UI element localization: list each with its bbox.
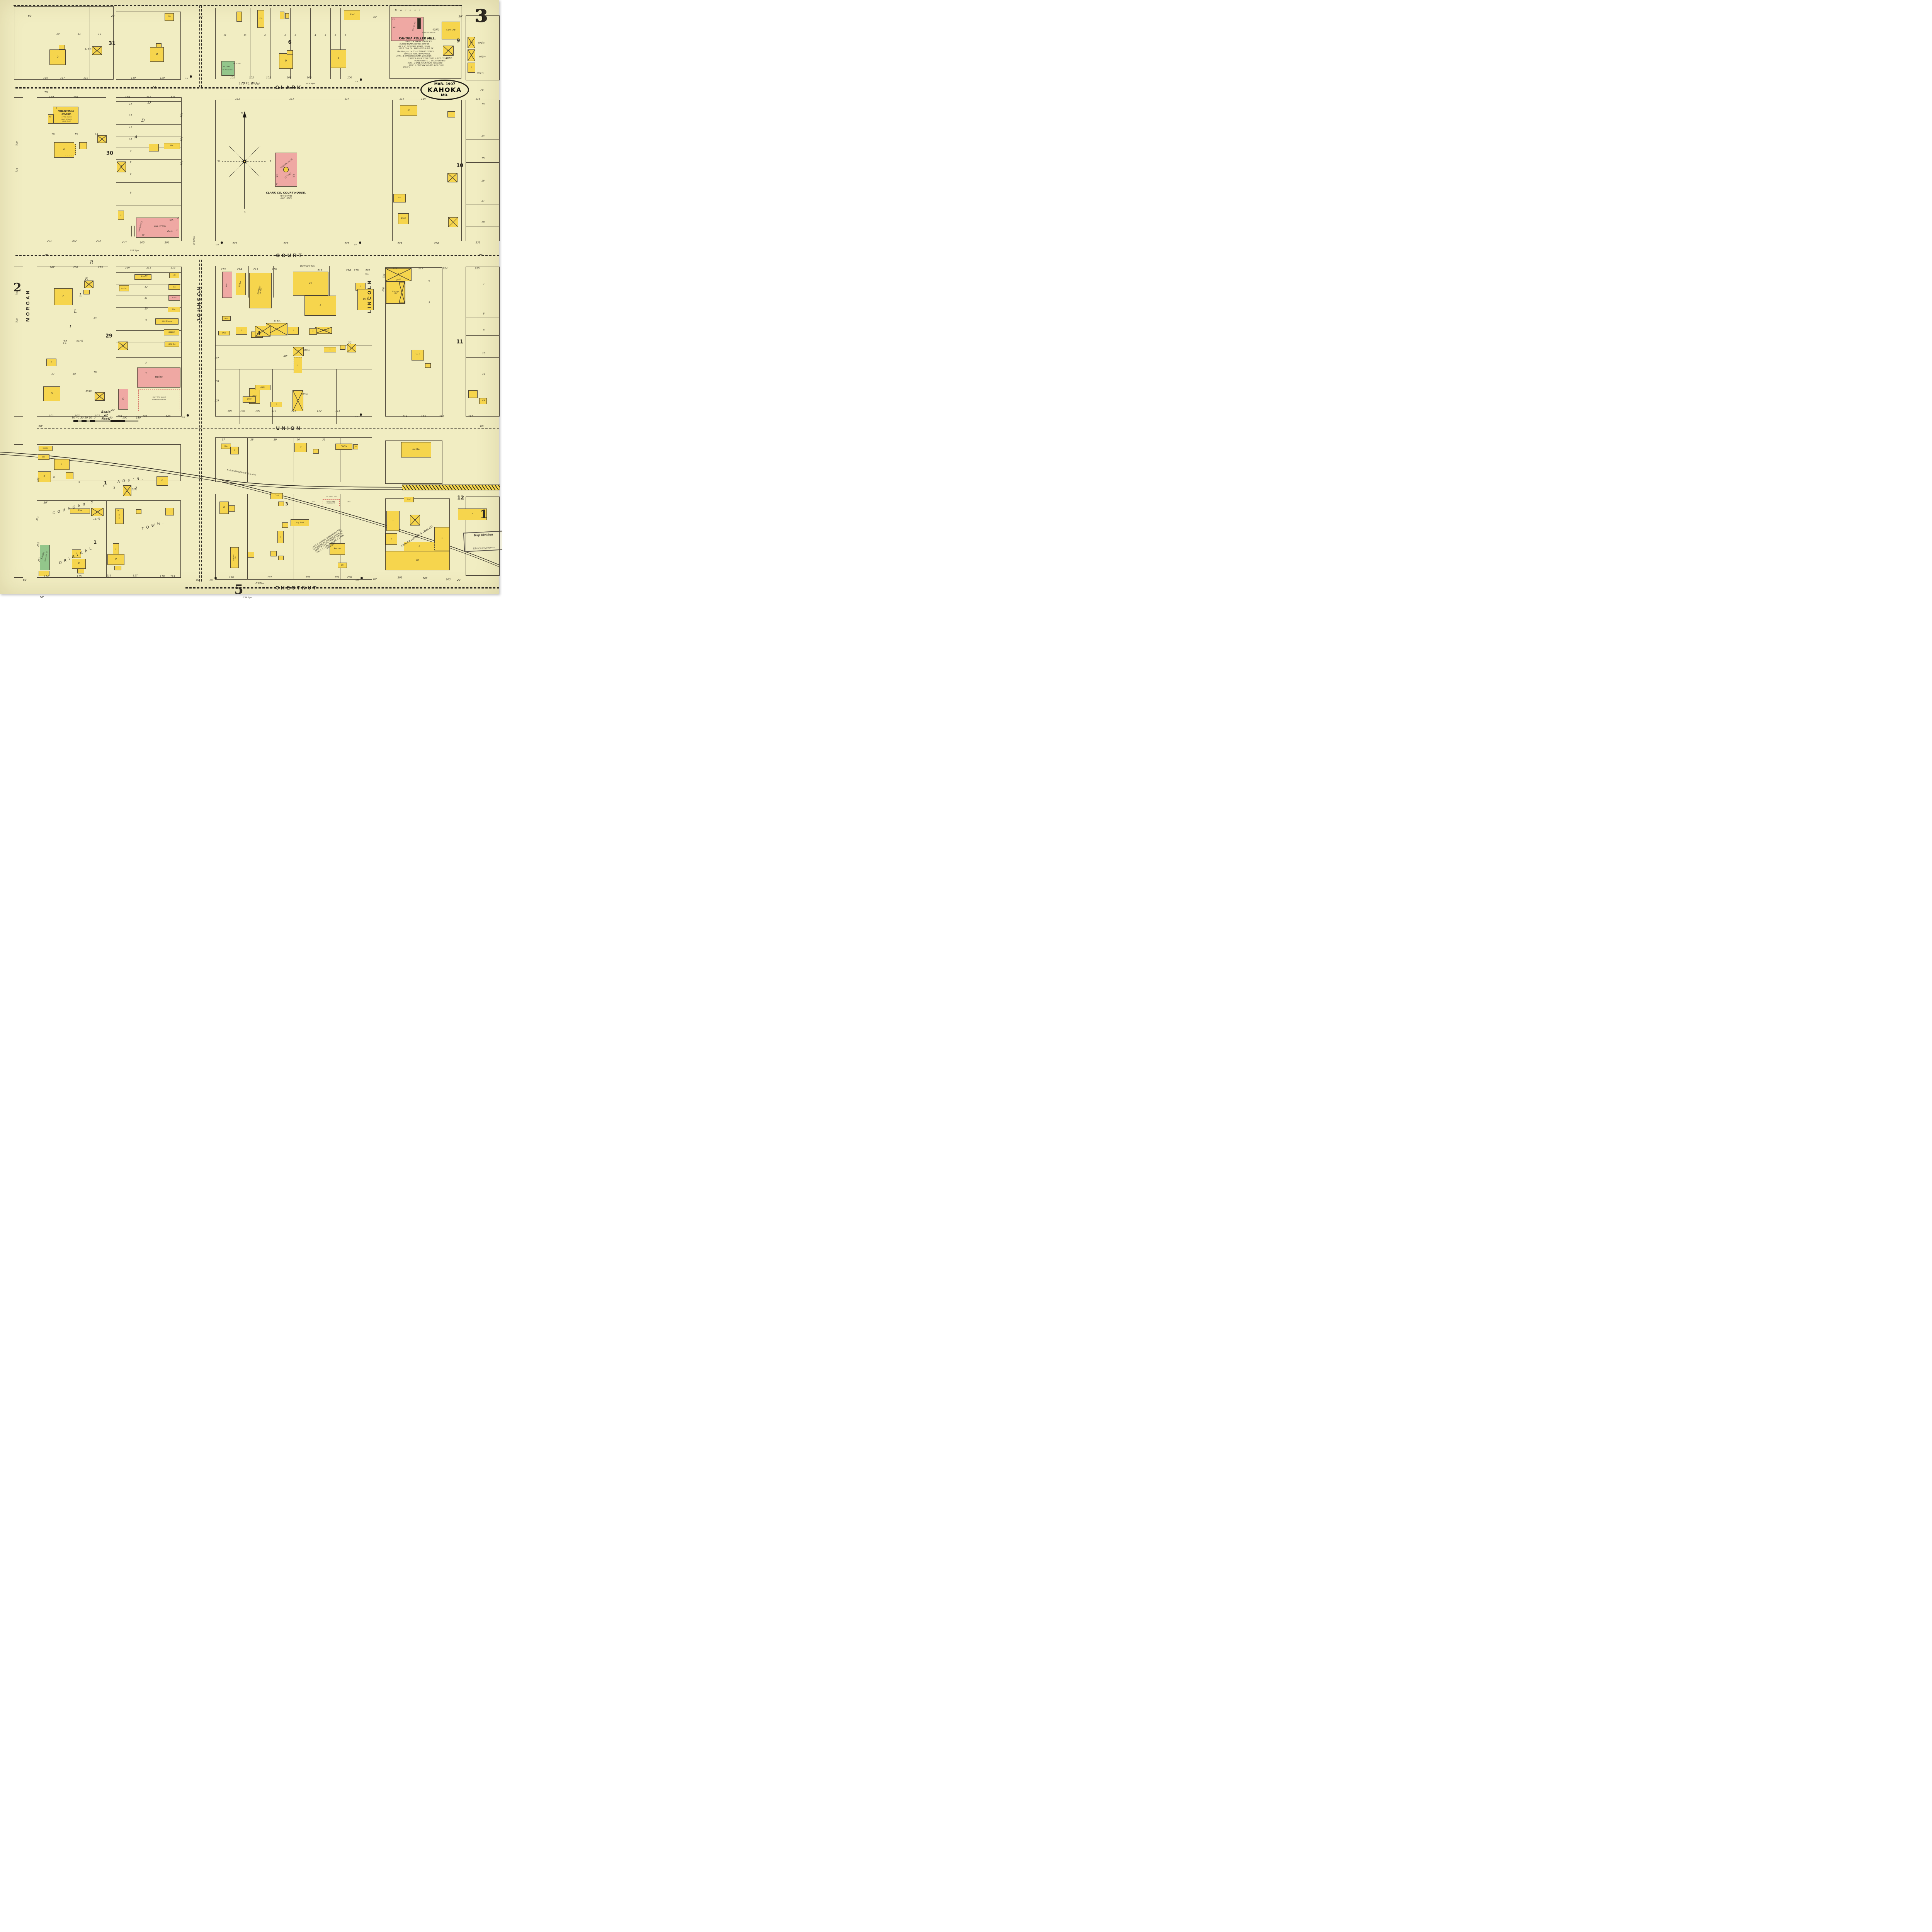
building-label: 1	[320, 304, 321, 306]
building-label: D	[408, 109, 410, 112]
building: 1	[324, 347, 336, 352]
building: D	[219, 502, 229, 514]
building: Vac.	[38, 454, 49, 460]
map-label: 6	[429, 279, 430, 282]
map-label: H	[63, 340, 67, 345]
map-label: 80'	[199, 16, 203, 19]
map-label: 10	[456, 163, 463, 169]
building-label: 1½	[398, 197, 401, 199]
building-label: Vac.	[170, 145, 174, 147]
building	[79, 142, 87, 149]
building: (Old) Storage	[155, 318, 179, 325]
building-label: Off.	[416, 560, 419, 561]
map-label: 1 PACKER, 5 DBLE STAND ROLLS.	[404, 53, 431, 55]
building: West	[243, 396, 256, 403]
building: Gro.	[222, 272, 232, 298]
map-label: 199	[335, 576, 339, 578]
building: Barber	[236, 273, 246, 295]
map-label: 3	[325, 34, 326, 37]
building	[83, 290, 90, 294]
map-label: 135	[214, 400, 219, 403]
building-label: 1	[330, 349, 331, 350]
map-label: 80'	[196, 579, 200, 582]
lot-line	[272, 369, 273, 424]
building-label: 2	[338, 58, 339, 60]
map-label: G"W.Pipe	[130, 250, 139, 252]
building-label: 2	[419, 546, 420, 548]
map-label: 220	[366, 269, 370, 272]
building-label: 1	[276, 404, 277, 405]
map-label: 113	[335, 410, 340, 412]
map-label: E	[85, 277, 88, 281]
lot-line	[69, 6, 69, 80]
map-label: 227	[284, 242, 288, 245]
street-name-court: COURT	[276, 253, 303, 259]
lot-line	[116, 124, 181, 125]
hydrant-label: D.H.	[355, 580, 359, 582]
map-label: 217½	[274, 321, 280, 323]
building-label: Hay Shed	[296, 522, 304, 524]
map-label: 14	[94, 316, 97, 319]
building: D	[150, 47, 164, 62]
street-name-clark: CLARK	[276, 85, 303, 90]
scale-bar-segment	[95, 420, 111, 422]
building-label: D	[44, 476, 45, 478]
map-label: ARCH 26' ABV. RF.	[422, 32, 435, 33]
building-label: 1	[127, 490, 128, 492]
map-label: 3	[113, 487, 115, 490]
building-label: 2	[51, 362, 52, 364]
map-label: D	[148, 100, 151, 105]
building: D	[49, 49, 66, 65]
map-label: STANDING IN RUIN.	[152, 399, 167, 400]
building: 2	[84, 281, 94, 288]
map-label: 116	[439, 415, 444, 418]
map-label: 11	[145, 297, 148, 300]
building	[448, 217, 458, 227]
scale-bar-tick: 100	[122, 416, 127, 419]
map-label: 9	[145, 320, 147, 322]
hydrant-dot	[360, 78, 362, 81]
street-dash-line	[14, 5, 462, 6]
lot-line	[247, 437, 248, 482]
map-label: 60'	[28, 15, 32, 18]
map-label: 198	[306, 576, 310, 578]
map-label: 2d Fl:— 1 CRANSON SCOURER & POLISHER.	[396, 56, 432, 58]
building	[59, 45, 65, 49]
building-label: Ruins	[155, 376, 162, 379]
building: (OLD)	[255, 385, 270, 390]
building: D	[43, 386, 60, 401]
map-label: 209	[98, 266, 103, 269]
map-label: 206½	[303, 350, 310, 352]
map-label: 5	[429, 301, 430, 304]
sanborn-map-page: MAR. 1907 KAHOKA MO. 3 Map Division Libr…	[0, 0, 502, 599]
building: (Old) D'g	[165, 342, 179, 347]
building: 1	[54, 459, 70, 470]
map-label: 401½	[446, 58, 452, 60]
map-label: 14	[95, 133, 98, 136]
map-label: ( 70 Ft. Wide)	[239, 82, 260, 86]
building: 2	[118, 342, 128, 350]
building-label: 1	[116, 549, 117, 550]
map-label: PART OF 2 WALLS	[153, 396, 166, 398]
building-label: 2	[121, 166, 122, 168]
map-label: 105	[307, 76, 311, 79]
building	[221, 61, 235, 76]
map-label: A	[134, 135, 138, 139]
building: 1½	[165, 13, 174, 21]
map-label: 18	[481, 221, 485, 223]
building	[97, 135, 107, 143]
hydrant-dot	[214, 577, 217, 579]
building-label: (Old) Storage	[162, 321, 172, 322]
lot-line	[466, 378, 500, 378]
building-label: Ice Ho.	[119, 514, 120, 519]
map-label: 197	[267, 576, 272, 578]
map-label: 211	[146, 266, 151, 269]
map-label: 226	[233, 242, 237, 245]
building-label: D	[51, 393, 53, 395]
map-label: 30'	[142, 234, 145, 236]
building: Ice Ho.	[119, 285, 129, 291]
street-name-johnson: JOHNSON	[196, 285, 202, 321]
building-label: Poultry	[341, 446, 347, 448]
map-label: 20'	[111, 409, 115, 412]
map-label: 6	[288, 40, 291, 46]
lot-line	[294, 494, 294, 580]
building	[156, 43, 162, 47]
map-label: 12	[98, 32, 101, 35]
building: 2	[468, 49, 475, 61]
map-label: 18	[73, 372, 76, 375]
scale-bar-segment	[86, 420, 90, 422]
railroad-crossing-hatch	[402, 485, 500, 490]
building-label: Vac.	[224, 446, 228, 447]
map-label: 136	[214, 381, 219, 383]
building-label: West	[247, 399, 251, 401]
building-label: Ruins	[172, 297, 176, 299]
map-label: 5	[234, 582, 243, 597]
building-label: Sal.	[173, 275, 176, 277]
building-label: Gro.	[226, 283, 228, 287]
building-label: Carriage Ho	[392, 291, 399, 294]
scale-bar-tick: 50	[72, 416, 75, 419]
map-label: 5	[145, 362, 147, 365]
map-stage: MAR. 1907 KAHOKA MO. 3 Map Division Libr…	[0, 0, 499, 594]
building: Corn Crib	[442, 22, 460, 39]
building-label: Seed Ho	[334, 548, 341, 550]
building-label: 1	[121, 214, 122, 216]
map-label: 8	[264, 34, 266, 37]
hydrant-label: D.H.	[354, 244, 357, 246]
map-label: 20'	[111, 15, 116, 18]
scale-bar-tick: 40	[76, 416, 79, 419]
map-label: LIGHT: LAMPS.	[280, 197, 292, 199]
building: 3	[277, 531, 284, 543]
map-label: 102½	[130, 489, 137, 492]
map-label: CLARK CO. COURT HOUSE.	[266, 192, 306, 195]
map-label: 210	[125, 266, 130, 269]
street-dash-line	[15, 88, 466, 89]
map-label: 203	[446, 578, 451, 581]
lot-line	[248, 266, 249, 298]
map-label: Tremont Ho.	[300, 265, 315, 267]
building-label: 2	[398, 274, 399, 276]
building-label: D	[78, 563, 80, 565]
building	[285, 13, 289, 19]
building-label: 2	[298, 351, 299, 353]
building-label: 1	[293, 330, 294, 332]
map-label: 7	[483, 282, 485, 285]
map-label: 10	[145, 308, 148, 311]
building	[77, 569, 84, 573]
building-label: (OLD) D	[168, 332, 175, 333]
building: Ruins	[168, 295, 180, 301]
building-label: Vac.	[172, 309, 175, 310]
map-label: 29	[274, 438, 277, 441]
map-label: 202	[423, 577, 427, 580]
map-label: 36'	[393, 27, 396, 29]
map-label: 20'	[457, 579, 461, 582]
building-label: Corn Crib	[446, 29, 455, 31]
map-label: E	[270, 161, 271, 163]
map-label: 108	[73, 96, 78, 99]
map-label: GASO. TANK UNDERGR'D	[327, 501, 335, 504]
building: Off.	[338, 563, 347, 568]
building	[278, 502, 284, 506]
map-label: 50'	[49, 116, 52, 118]
map-label: 208	[73, 266, 78, 269]
building: Coal	[404, 497, 414, 502]
map-label: 205	[140, 241, 145, 244]
lot-line	[466, 185, 500, 185]
map-label: 20 24	[276, 174, 278, 177]
lot-line	[234, 266, 234, 298]
map-label: 110	[272, 410, 276, 412]
map-label: S	[244, 211, 245, 214]
building: 2	[117, 162, 126, 172]
map-label: 12	[129, 115, 132, 117]
map-label: 218	[346, 269, 351, 272]
map-label: 119	[131, 77, 136, 79]
map-label: 117	[60, 77, 65, 79]
scale-bar-segment	[111, 420, 125, 422]
lot-line	[116, 159, 181, 160]
map-label: 17	[51, 372, 54, 375]
map-label: 13	[129, 103, 132, 106]
building-label: D	[63, 296, 65, 298]
map-label: 103	[95, 414, 100, 417]
map-label: I	[70, 325, 71, 329]
map-label: 215	[253, 268, 258, 270]
building: D	[294, 443, 307, 452]
map-label: 60'	[40, 596, 44, 599]
building	[92, 46, 102, 55]
lot-line	[250, 8, 250, 79]
map-label: 70'	[479, 254, 483, 257]
building	[282, 522, 288, 528]
building	[236, 12, 242, 22]
map-label: 30	[106, 151, 113, 157]
map-label: 19	[94, 371, 97, 374]
lot-line	[116, 357, 181, 358]
map-label: 120	[160, 77, 165, 79]
building: 1	[288, 327, 299, 335]
building-label: (Old) D'g	[168, 344, 175, 345]
map-label: 31	[109, 41, 116, 47]
map-label: 6	[284, 34, 286, 37]
scale-bar-segment	[82, 420, 86, 422]
map-label: 202	[72, 240, 77, 242]
building	[425, 363, 431, 368]
map-label: 3	[476, 6, 488, 26]
building-label: 2	[415, 519, 416, 521]
map-label: 106	[347, 76, 352, 79]
building: 1½ D	[398, 213, 409, 224]
building: 1	[236, 327, 247, 335]
map-label: 222	[393, 267, 398, 270]
map-label: 8	[130, 161, 131, 164]
building: 1½	[353, 444, 358, 449]
map-label: 104	[287, 76, 291, 79]
lot-line	[116, 136, 181, 136]
hydrant-dot	[221, 241, 223, 244]
map-label: UB. & ENG.	[233, 63, 241, 65]
map-label: 70'	[373, 16, 377, 19]
building-label: 1	[471, 67, 472, 68]
building: D	[54, 288, 73, 305]
map-label: 16	[481, 179, 485, 182]
building-label: 1	[472, 513, 473, 515]
building-label: D	[300, 446, 301, 448]
map-label: 3	[285, 502, 288, 507]
building-label: 1	[360, 286, 361, 287]
map-label: 7	[130, 173, 131, 176]
lot-line	[106, 500, 107, 578]
map-date: MAR. 1907	[434, 82, 456, 86]
building-label: Shed	[78, 510, 82, 512]
street-dash-line	[185, 587, 499, 588]
hydrant-dot	[360, 413, 362, 416]
building: 1½	[347, 344, 356, 352]
map-label: 205½	[301, 394, 308, 396]
map-label: 1	[56, 108, 57, 110]
map-label: INCL.	[347, 502, 351, 503]
map-label: 219	[354, 269, 359, 272]
map-label: 28	[250, 438, 253, 441]
building	[447, 173, 457, 182]
building-label: Off.	[341, 565, 344, 566]
map-label: 17	[481, 199, 485, 202]
map-label: 4"W.Pipe	[306, 83, 315, 85]
building: 1½	[91, 508, 104, 516]
map-label: 11	[456, 340, 463, 345]
building-label: STRIPER HO.	[233, 554, 236, 561]
map-label: 216	[272, 268, 277, 270]
map-label: KAHOKA ROLLER MILL.	[399, 37, 436, 40]
map-label: 214	[237, 268, 242, 270]
map-label: 115	[421, 415, 426, 418]
building	[280, 12, 284, 19]
building-label: Coal	[275, 495, 279, 497]
hydrant-label: D.H.	[355, 416, 358, 418]
map-label: 60'	[23, 579, 27, 582]
map-label: 12	[457, 496, 464, 502]
building-label: Ice Ho.	[412, 449, 420, 451]
map-label: 112	[317, 410, 321, 412]
map-label: 114	[44, 575, 49, 578]
map-label: 5	[294, 34, 296, 37]
map-label: 102	[249, 76, 254, 79]
lot-line	[466, 288, 500, 288]
building-label: 1	[391, 538, 392, 540]
building-label: 2½	[309, 282, 312, 284]
map-label: 11	[129, 126, 132, 129]
building: 1½	[468, 37, 475, 48]
lot-line	[466, 335, 500, 336]
lot-line	[90, 6, 90, 80]
map-label: 111	[291, 410, 296, 412]
block-outline	[116, 12, 181, 80]
map-label: 2	[276, 184, 277, 186]
map-label: Bank	[167, 230, 173, 233]
map-label: L	[79, 293, 82, 298]
building: Confec.	[39, 446, 53, 451]
building: 2	[410, 515, 420, 526]
building: 2½	[293, 272, 328, 296]
building: D	[279, 53, 293, 69]
building: Vac.	[221, 444, 231, 449]
map-label: 101	[230, 76, 235, 79]
building-label: 1½	[447, 50, 449, 51]
building-label: 2	[88, 284, 90, 286]
map-label: 101	[49, 414, 54, 417]
map-label: 213	[221, 268, 226, 270]
map-label: 104	[117, 415, 122, 418]
map-label: 137	[214, 357, 219, 360]
lot-line	[116, 206, 181, 206]
hydrant-label: D.H.	[355, 81, 358, 83]
building-label: 1	[393, 520, 394, 522]
building: 1	[118, 211, 124, 220]
building-label: Vac.	[173, 286, 176, 288]
map-label: 10	[244, 34, 247, 37]
map-label: 113	[289, 97, 294, 100]
map-label: 108	[240, 410, 245, 412]
map-label: 11	[78, 32, 81, 35]
building-label: 1½ D	[415, 354, 420, 356]
building: Coal	[270, 493, 283, 499]
scale-bar-tick: 0	[94, 416, 95, 419]
map-label: 224	[443, 267, 447, 270]
building: 1½ D	[412, 350, 424, 361]
lot-line	[466, 357, 500, 358]
lot-line	[466, 116, 500, 116]
building: 1	[468, 63, 475, 73]
map-label: 12	[145, 286, 148, 289]
map-label: D	[141, 118, 145, 123]
block-outline	[14, 6, 23, 80]
building-label: D	[223, 507, 225, 509]
map-label: 118	[476, 97, 480, 100]
map-label: 231	[476, 241, 480, 244]
map-label: 204	[122, 240, 127, 243]
building: STRIPER HO.	[230, 547, 239, 568]
building	[399, 282, 405, 303]
map-label: 60'	[480, 425, 485, 428]
street-name-lincoln: LINCOLN	[367, 279, 372, 313]
